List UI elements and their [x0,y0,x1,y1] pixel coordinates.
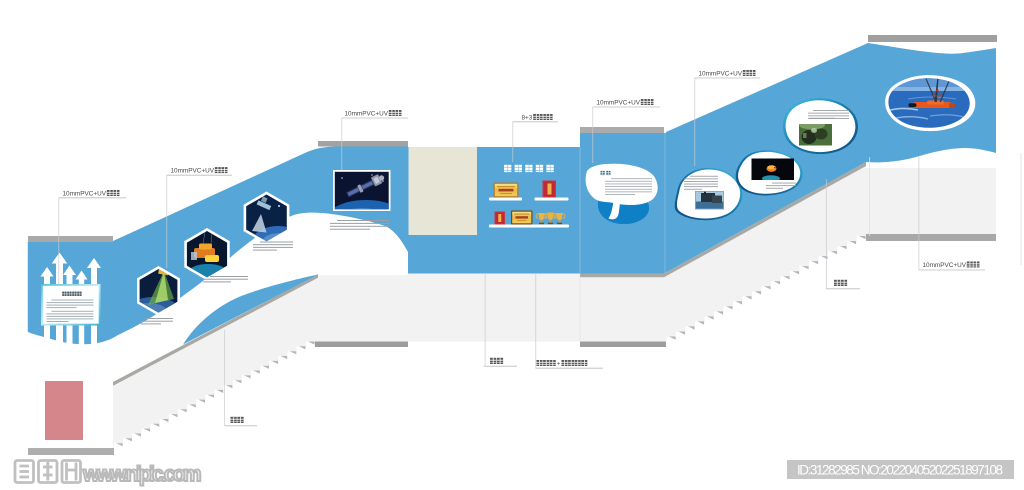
svg-text:10mmPVC+UV: 10mmPVC+UV [699,71,743,78]
svg-text:10mmPVC+UV: 10mmPVC+UV [63,191,107,198]
svg-text:10mmPVC+UV: 10mmPVC+UV [923,262,967,269]
svg-text:ID:31282985 NO:202204052022518: ID:31282985 NO:20220405202251897108 [797,463,1003,478]
svg-text:10mmPVC+UV: 10mmPVC+UV [345,111,389,118]
svg-text:8+3: 8+3 [522,115,533,122]
svg-text:10mmPVC+UV: 10mmPVC+UV [597,100,641,107]
svg-text:+: + [557,361,561,368]
svg-text:10mmPVC+UV: 10mmPVC+UV [171,168,215,175]
svg-text:www.nipic.com: www.nipic.com [82,463,202,486]
